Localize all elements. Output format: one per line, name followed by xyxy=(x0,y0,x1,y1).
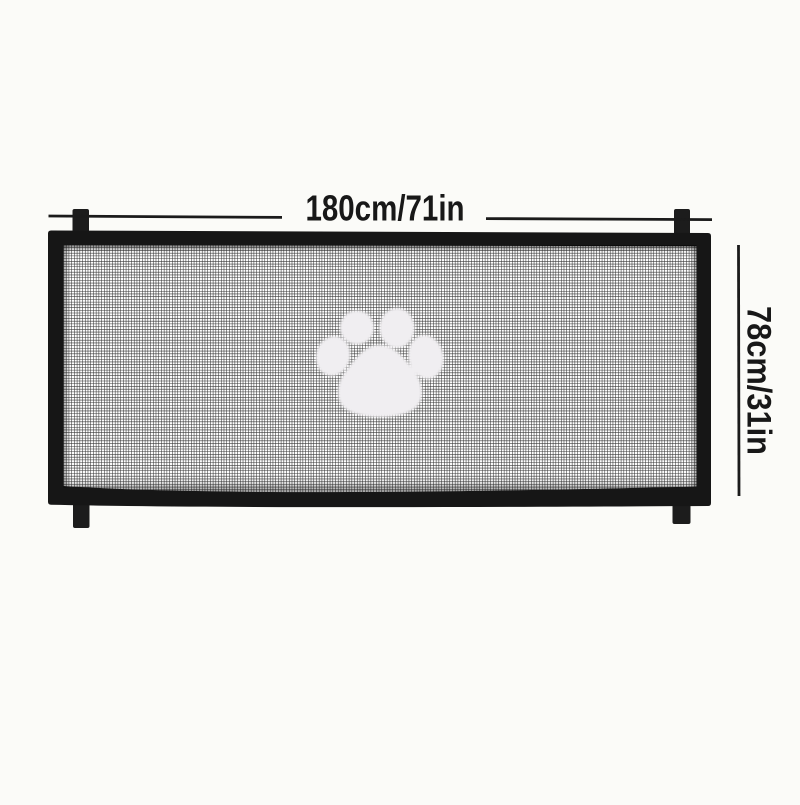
svg-text:180cm/71in: 180cm/71in xyxy=(305,188,464,228)
svg-text:78cm/31in: 78cm/31in xyxy=(740,306,778,455)
